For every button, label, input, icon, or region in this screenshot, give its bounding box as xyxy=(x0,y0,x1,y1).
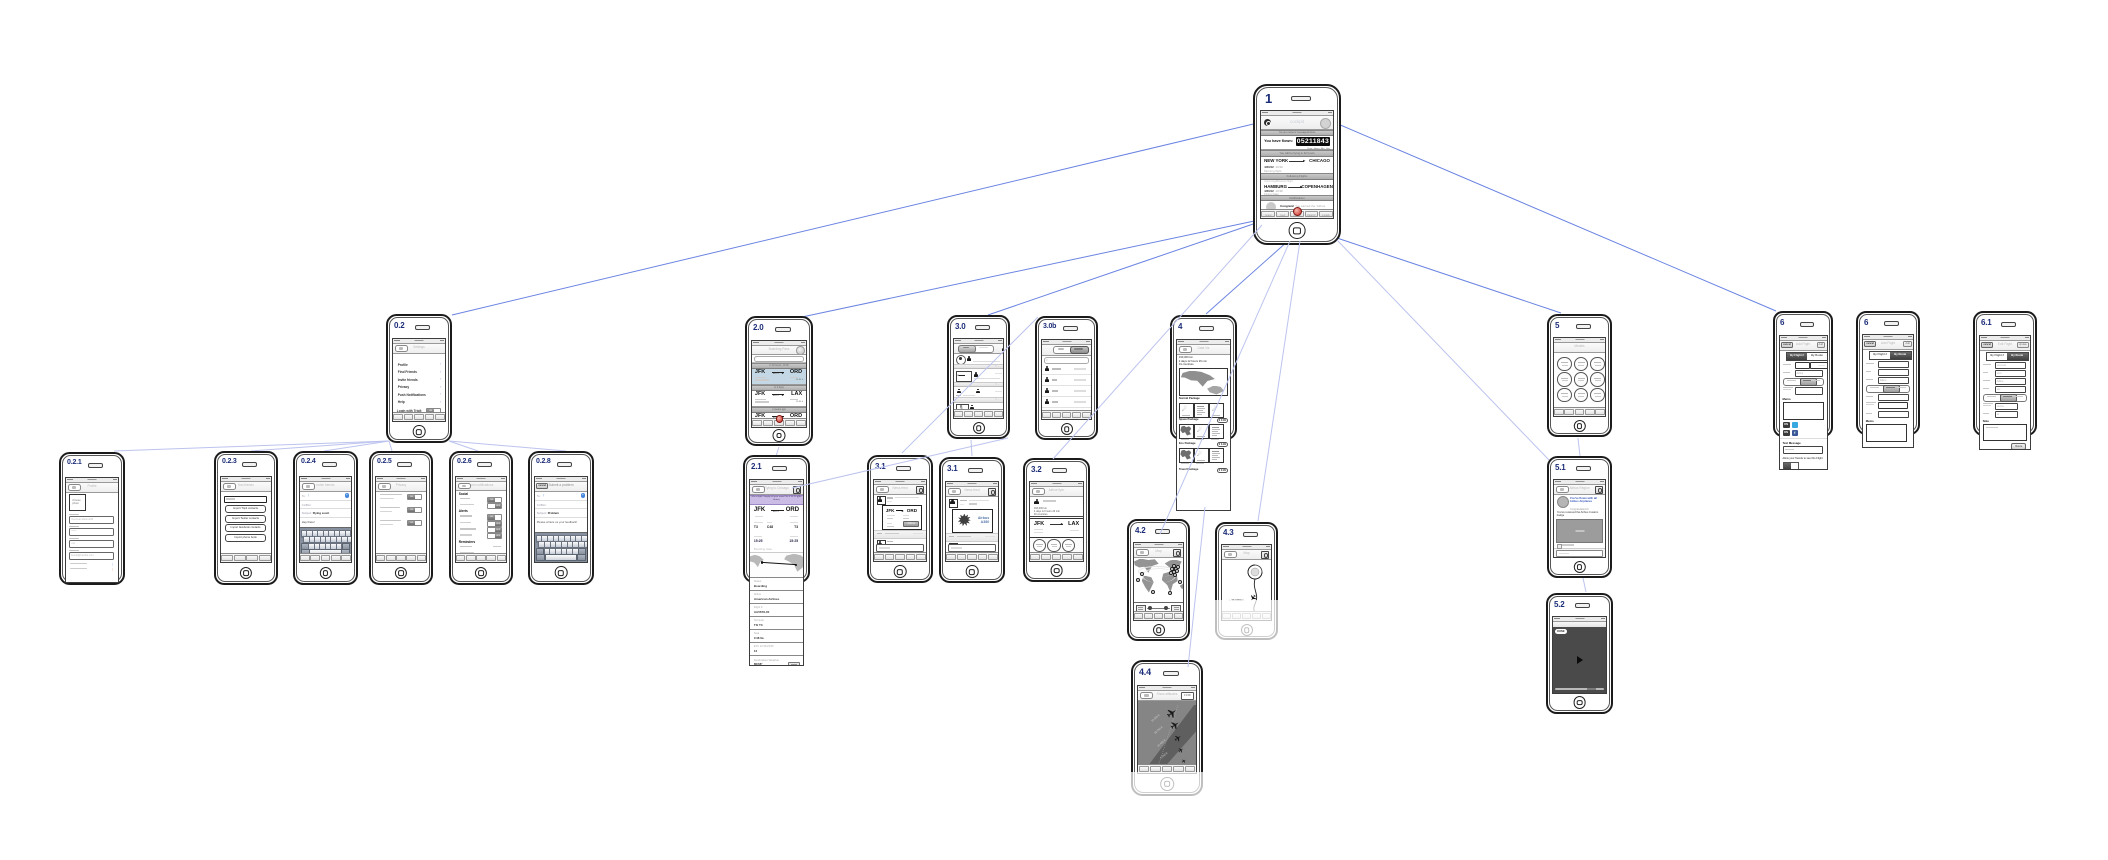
svg-text:10,000 ft: 10,000 ft xyxy=(1150,713,1161,723)
svg-text:29,750 ft: 29,750 ft xyxy=(1153,725,1164,735)
